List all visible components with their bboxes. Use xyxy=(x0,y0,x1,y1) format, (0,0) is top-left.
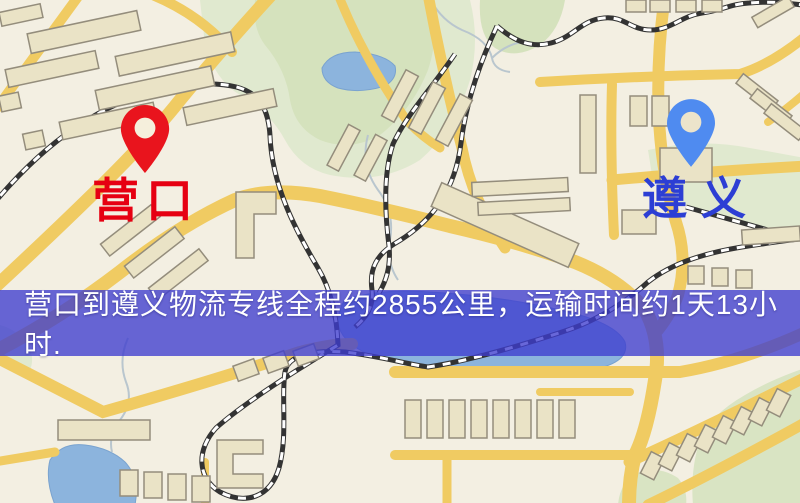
route-info-banner: 营口到遵义物流专线全程约2855公里，运输时间约1天13小时. xyxy=(0,290,800,356)
map-canvas xyxy=(0,0,800,503)
origin-pin-body[interactable] xyxy=(121,105,169,173)
destination-pin-icon[interactable] xyxy=(667,97,715,169)
map-viewport[interactable]: 营口 遵义 营口到遵义物流专线全程约2855公里，运输时间约1天13小时. xyxy=(0,0,800,503)
destination-pin-hole xyxy=(681,112,702,133)
origin-label: 营口 xyxy=(92,177,200,224)
origin-pin-icon[interactable] xyxy=(118,105,172,173)
destination-pin-body[interactable] xyxy=(667,99,715,167)
route-info-text: 营口到遵义物流专线全程约2855公里，运输时间约1天13小时. xyxy=(24,283,800,363)
origin-pin-hole xyxy=(135,118,156,139)
destination-label: 遵义 xyxy=(642,176,760,221)
